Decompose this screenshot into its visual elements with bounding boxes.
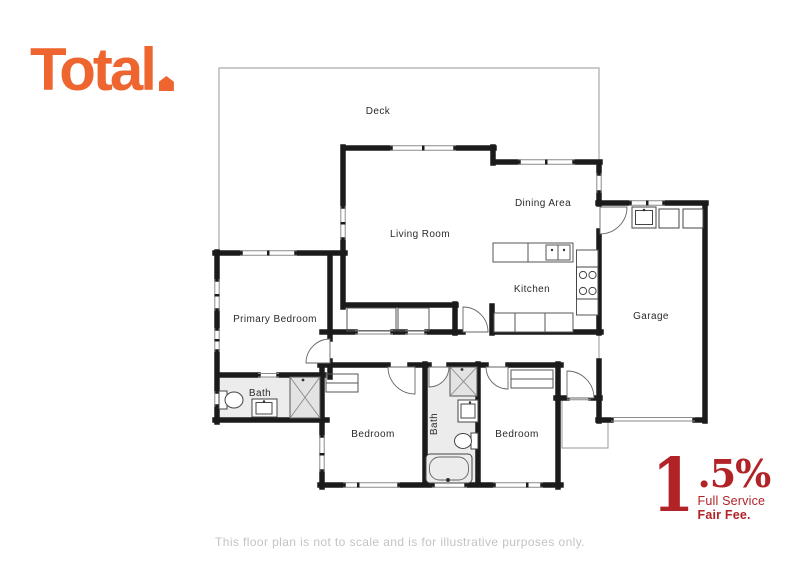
- primary-shower: [290, 377, 320, 418]
- fee-numeral: 1: [652, 458, 694, 516]
- deck-outline: [219, 68, 599, 253]
- hall-closets: [347, 308, 429, 331]
- fee-line2: Fair Fee.: [698, 508, 771, 522]
- front-entry-door-arc: [567, 371, 594, 398]
- living-room-label: Living Room: [390, 229, 450, 240]
- garage-sink: [632, 207, 656, 228]
- right-bedroom-door-arc: [486, 367, 508, 389]
- garage-door-line: [611, 418, 695, 422]
- bathtub: [426, 454, 472, 483]
- bedroom-left-label: Bedroom: [351, 429, 394, 440]
- garage-appliances: [659, 209, 703, 228]
- primary-bath-label: Bath: [249, 388, 271, 399]
- kitchen-label: Kitchen: [514, 284, 550, 295]
- fee-line1: Full Service: [698, 494, 771, 508]
- deck-label: Deck: [366, 106, 391, 117]
- central-bath-label: Bath: [429, 413, 440, 435]
- dining-area-label: Dining Area: [515, 198, 571, 209]
- primary-bedroom-label: Primary Bedroom: [233, 314, 317, 325]
- disclaimer-text: This floor plan is not to scale and is f…: [0, 535, 800, 549]
- fee-badge: 1 .5% Full Service Fair Fee.: [652, 458, 770, 522]
- primary-bedroom-door-arc: [306, 339, 330, 363]
- fee-fraction: .5%: [698, 458, 771, 490]
- left-bedroom-door-arc: [388, 367, 415, 394]
- stove: [577, 267, 599, 299]
- page: Total: [0, 0, 800, 565]
- garage-entry-door-arc: [600, 207, 627, 234]
- garage-label: Garage: [633, 311, 669, 322]
- kitchen-hall-door-arc: [463, 307, 488, 332]
- bedroom-right-label: Bedroom: [495, 429, 538, 440]
- central-shower: [450, 367, 477, 396]
